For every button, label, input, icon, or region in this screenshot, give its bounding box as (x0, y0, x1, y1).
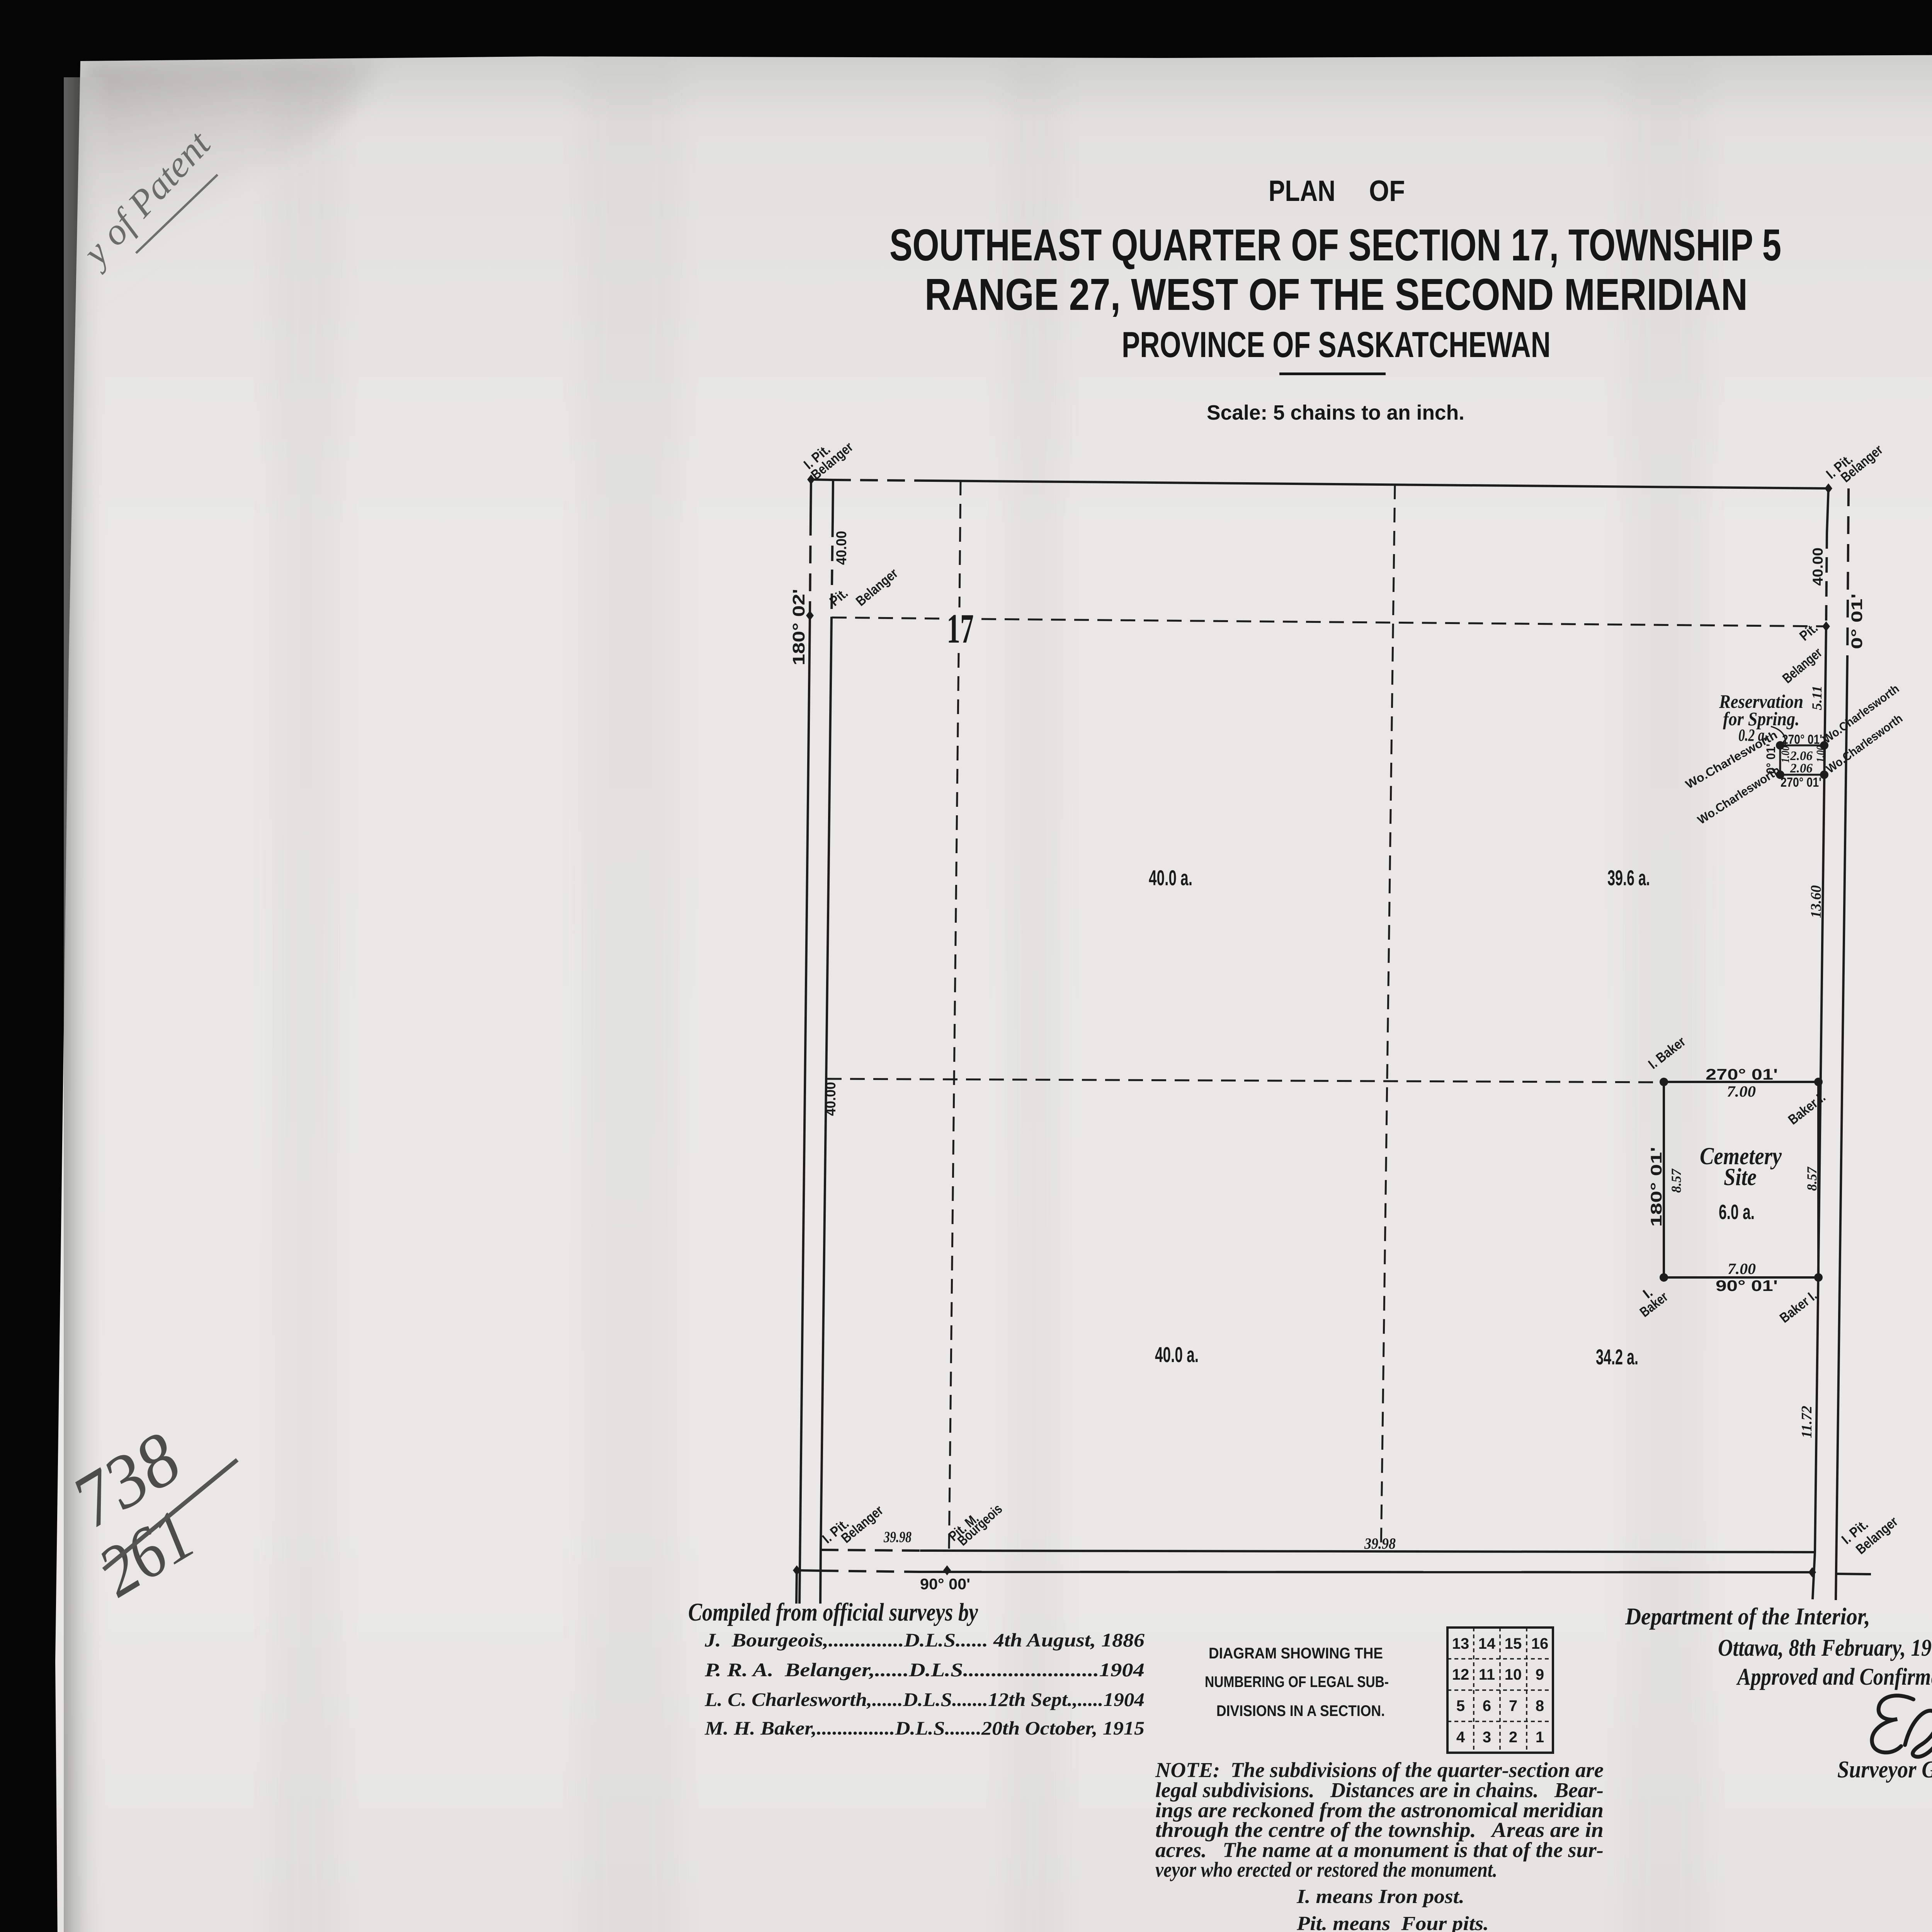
svg-text:7.00: 7.00 (1727, 1083, 1756, 1100)
svg-text:11: 11 (1479, 1666, 1495, 1683)
svg-text:Compiled from official surveys: Compiled from official surveys by (688, 1598, 978, 1626)
svg-text:15: 15 (1505, 1635, 1522, 1652)
svg-text:7: 7 (1509, 1697, 1517, 1714)
svg-text:8: 8 (1536, 1697, 1544, 1714)
svg-text:PROVINCE OF SASKATCHEWAN: PROVINCE OF SASKATCHEWAN (1122, 324, 1551, 365)
svg-text:J. Bourgeois,..............D.: J. Bourgeois,..............D.L.S...... 4… (704, 1629, 1145, 1651)
svg-text:40.00: 40.00 (833, 531, 849, 565)
svg-text:2.06: 2.06 (1790, 761, 1813, 776)
svg-text:2: 2 (1509, 1729, 1517, 1746)
svg-text:6: 6 (1483, 1697, 1491, 1714)
svg-text:1: 1 (1536, 1729, 1544, 1746)
svg-text:270° 01': 270° 01' (1782, 732, 1822, 747)
svg-text:6.0 a.: 6.0 a. (1719, 1201, 1755, 1224)
svg-text:DIAGRAM SHOWING THE: DIAGRAM SHOWING THE (1209, 1645, 1383, 1662)
svg-text:4: 4 (1456, 1729, 1465, 1746)
svg-text:16: 16 (1531, 1635, 1549, 1652)
svg-text:veyor who erected or restored: veyor who erected or restored the monume… (1155, 1858, 1497, 1881)
svg-text:Site: Site (1724, 1163, 1757, 1190)
svg-text:I. means Iron post.: I. means Iron post. (1296, 1886, 1464, 1908)
svg-text:M. H. Baker,...............D.L: M. H. Baker,...............D.L.S.......2… (704, 1717, 1145, 1739)
svg-text:90° 00': 90° 00' (920, 1576, 970, 1593)
svg-text:90° 01': 90° 01' (1716, 1277, 1778, 1294)
svg-text:L. C. Charlesworth,......D.L.S: L. C. Charlesworth,......D.L.S.......12t… (704, 1689, 1145, 1710)
svg-text:13.60: 13.60 (1808, 885, 1824, 918)
svg-text:5.11: 5.11 (1809, 685, 1825, 710)
svg-text:8.57: 8.57 (1804, 1166, 1820, 1191)
svg-text:3: 3 (1483, 1729, 1491, 1746)
svg-text:8.57: 8.57 (1668, 1168, 1684, 1193)
svg-text:SOUTHEAST QUARTER OF SECTION 1: SOUTHEAST QUARTER OF SECTION 17, TOWNSHI… (889, 220, 1781, 270)
svg-text:40.00: 40.00 (1810, 548, 1826, 586)
svg-text:39.6 a.: 39.6 a. (1607, 866, 1650, 890)
svg-text:Department of the Interior,: Department of the Interior, (1625, 1604, 1870, 1630)
svg-text:40.00: 40.00 (823, 1082, 838, 1116)
svg-text:34.2 a.: 34.2 a. (1596, 1345, 1638, 1369)
svg-text:DIVISIONS IN A SECTION.: DIVISIONS IN A SECTION. (1216, 1702, 1385, 1719)
svg-text:40.0 a.: 40.0 a. (1155, 1342, 1199, 1367)
svg-text:5: 5 (1456, 1697, 1465, 1714)
svg-text:270° 01': 270° 01' (1706, 1066, 1778, 1083)
svg-text:180° 01': 180° 01' (1648, 1147, 1665, 1227)
svg-text:RANGE 27, WEST OF THE SECOND M: RANGE 27, WEST OF THE SECOND MERIDIAN (925, 269, 1748, 320)
svg-text:Surveyor General.: Surveyor General. (1837, 1757, 1932, 1783)
svg-text:13: 13 (1452, 1635, 1469, 1652)
svg-text:OF: OF (1369, 175, 1405, 207)
svg-text:39.98: 39.98 (883, 1528, 912, 1546)
svg-text:14: 14 (1478, 1635, 1496, 1652)
svg-text:270° 01': 270° 01' (1781, 775, 1821, 790)
svg-text:11.72: 11.72 (1799, 1406, 1815, 1438)
svg-text:NUMBERING OF LEGAL SUB-: NUMBERING OF LEGAL SUB- (1205, 1673, 1389, 1690)
svg-text:10: 10 (1505, 1666, 1522, 1683)
svg-text:P. R. A. Belanger,......D.L.S: P. R. A. Belanger,......D.L.S...........… (704, 1659, 1145, 1680)
svg-text:1.00: 1.00 (1814, 745, 1827, 762)
svg-text:40.0 a.: 40.0 a. (1149, 866, 1192, 890)
svg-text:Pit. means Four pits.: Pit. means Four pits. (1296, 1913, 1489, 1932)
svg-text:9: 9 (1536, 1666, 1544, 1683)
svg-text:0° 01': 0° 01' (1849, 594, 1866, 649)
svg-text:12: 12 (1452, 1666, 1469, 1683)
svg-text:17: 17 (947, 606, 974, 652)
svg-text:Approved and Confirmed: Approved and Confirmed (1736, 1664, 1932, 1690)
svg-text:Ottawa, 8th February, 1917: Ottawa, 8th February, 1917 (1718, 1635, 1932, 1661)
svg-text:7.00: 7.00 (1728, 1260, 1756, 1277)
svg-text:39.98: 39.98 (1364, 1535, 1396, 1552)
svg-text:for Spring.: for Spring. (1723, 708, 1799, 730)
svg-text:180° 02': 180° 02' (789, 589, 808, 665)
svg-text:Scale: 5 chains to an inch.: Scale: 5 chains to an inch. (1207, 401, 1464, 424)
svg-text:PLAN: PLAN (1269, 175, 1335, 207)
